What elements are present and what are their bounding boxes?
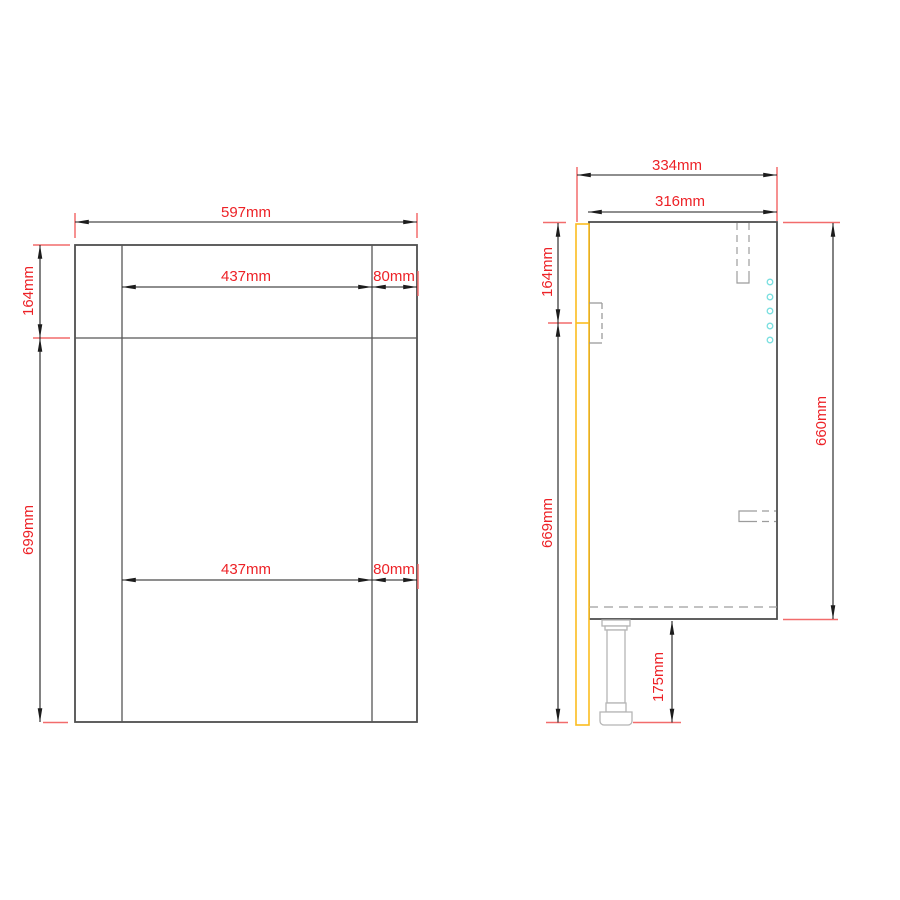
dimension-label: 437mm <box>221 268 271 285</box>
shelf-pin-hole <box>767 337 773 343</box>
dimension-label: 437mm <box>221 561 271 578</box>
bracket-foot <box>737 271 749 283</box>
dim-front-top-right-width: 80mm <box>372 268 417 287</box>
shelf-pin-hole <box>767 323 773 329</box>
side-wall-bracket-hidden <box>737 223 749 283</box>
dimension-label: 80mm <box>373 561 415 578</box>
dim-front-top-center-width: 437mm <box>122 268 372 287</box>
dim-side-body-height: 660mm <box>813 223 833 619</box>
shelf-pin-hole <box>767 294 773 300</box>
door-hinge-plate <box>589 303 602 343</box>
dimension-label: 164mm <box>539 247 556 297</box>
shelf-pin-holes <box>767 279 773 343</box>
dim-front-bottom-right-width: 80mm <box>372 561 417 580</box>
shelf-pin-hole <box>767 308 773 314</box>
dim-side-body-depth: 316mm <box>588 193 777 212</box>
dim-front-overall-width: 597mm <box>75 204 417 222</box>
cabinet-technical-drawing: 597mm 437mm 80mm 437mm 80mm 164mm 699mm <box>0 0 900 900</box>
dimension-label: 597mm <box>221 204 271 221</box>
dim-front-bottom-center-width: 437mm <box>122 561 372 580</box>
dim-side-leg-height: 175mm <box>650 621 672 723</box>
dimension-label: 669mm <box>539 498 556 548</box>
dimension-label: 699mm <box>20 505 37 555</box>
dimension-label: 175mm <box>650 652 667 702</box>
dim-side-overall-depth: 334mm <box>577 157 777 175</box>
door-panel-side-profile <box>576 224 589 725</box>
door-panel-outline <box>576 224 589 725</box>
side-rear-bracket-hidden <box>739 511 776 522</box>
dimension-label: 660mm <box>813 396 830 446</box>
dimension-label: 164mm <box>20 266 37 316</box>
bracket-clip <box>739 511 750 522</box>
dimension-label: 316mm <box>655 193 705 210</box>
adjustable-leg <box>600 620 632 725</box>
shelf-pin-hole <box>767 279 773 285</box>
leg-foot <box>600 712 632 725</box>
dim-front-lower-section-height: 699mm <box>20 338 40 722</box>
side-elevation-view: 334mm 316mm 164mm 669mm 660mm 175mm <box>539 157 840 725</box>
dim-side-front-height: 669mm <box>539 323 558 723</box>
dimension-label: 334mm <box>652 157 702 174</box>
dim-front-top-section-height: 164mm <box>20 245 40 338</box>
front-cabinet-outline <box>75 245 417 722</box>
leg-mounting-plate <box>602 620 630 626</box>
front-elevation-view: 597mm 437mm 80mm 437mm 80mm 164mm 699mm <box>20 204 418 723</box>
front-extension-ticks <box>33 213 418 723</box>
dim-side-top-section-height: 164mm <box>539 223 558 323</box>
leg-adjuster-ring <box>606 703 626 712</box>
leg-shaft <box>607 630 625 703</box>
dimension-label: 80mm <box>373 268 415 285</box>
